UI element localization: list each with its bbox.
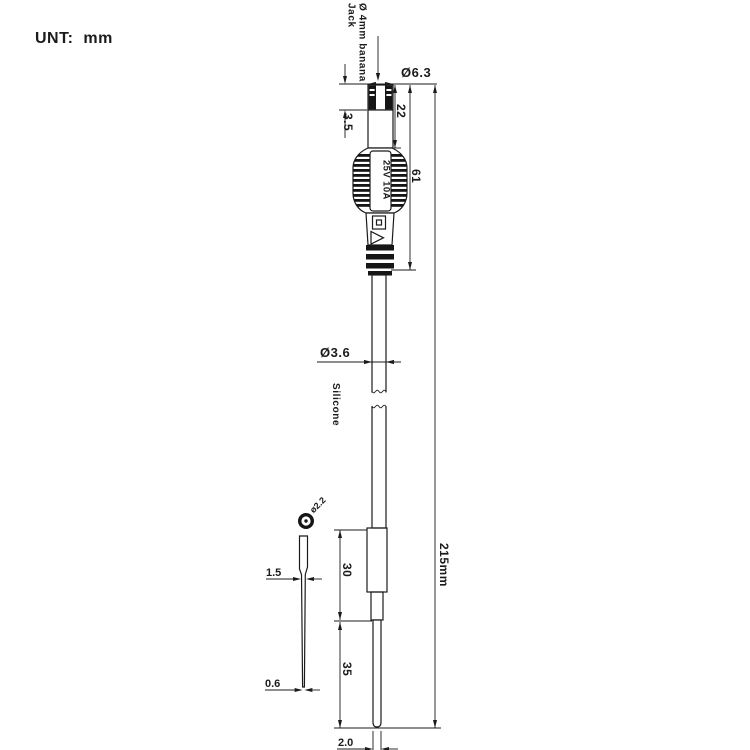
dim-grip-len: 30 <box>334 530 372 621</box>
needle-tip-width-label: 0.6 <box>265 678 280 690</box>
tip-section-len-label: 35 <box>340 662 354 676</box>
dim-jack-outer-dia: Ø6.3 <box>339 65 437 86</box>
rating-label: 25V 10A <box>381 160 392 200</box>
dim-overall-len: 215mm <box>433 85 451 728</box>
cap-len-label: 3.5 <box>341 113 355 131</box>
jack-leader-arrow-icon <box>376 73 380 81</box>
needle-dia-label: ø2.2 <box>308 495 328 515</box>
dim-cable-dia: Ø3.6 <box>317 345 401 364</box>
cable-material-label: Silicone <box>330 383 341 426</box>
dim-tip-section-len: 35 <box>338 622 354 728</box>
cable-break-gap <box>369 393 389 407</box>
probe-grip <box>367 528 387 592</box>
strain-relief <box>366 245 394 276</box>
needle-mid-width-label: 1.5 <box>266 567 281 579</box>
dim-needle-tip: 0.6 <box>265 678 320 692</box>
tip-dia-label: 2.0 <box>338 737 353 749</box>
grip-len-label: 30 <box>340 563 354 577</box>
jack-cap <box>368 85 393 110</box>
dim-needle-mid: 1.5 <box>266 567 322 581</box>
jack-shaft <box>368 110 393 148</box>
dim-tip-dia: 2.0 <box>337 731 398 750</box>
technical-drawing: UNT: mm Ø 4mm banana Jack <box>0 0 750 750</box>
needle-side-view <box>300 536 308 687</box>
connector-body: 25V 10A <box>349 148 411 213</box>
pin-len-label: 22 <box>394 104 408 118</box>
unit-note: UNT: mm <box>35 30 113 47</box>
probe-technical-drawing-page: UNT: mm Ø 4mm banana Jack <box>0 0 750 750</box>
cable-dia-label: Ø3.6 <box>320 345 350 360</box>
needle-detail: ø2.2 1.5 0.6 <box>265 495 328 692</box>
probe-collar <box>371 592 383 620</box>
probe-tip <box>373 620 381 727</box>
jack-outer-dia-label: Ø6.3 <box>401 65 431 80</box>
jack-label-line2: Jack <box>346 3 357 28</box>
dim-pin-len: 22 <box>393 85 408 148</box>
jack-label-line1: Ø 4mm banana <box>357 3 368 82</box>
probe <box>367 528 387 727</box>
connector-neck <box>366 213 394 245</box>
jack-label: Ø 4mm banana Jack <box>346 3 381 82</box>
needle-top-view: ø2.2 <box>298 495 328 529</box>
connector-len-label: 61 <box>409 169 423 183</box>
overall-len-label: 215mm <box>437 543 451 587</box>
silicone-cable: Silicone <box>330 275 389 528</box>
